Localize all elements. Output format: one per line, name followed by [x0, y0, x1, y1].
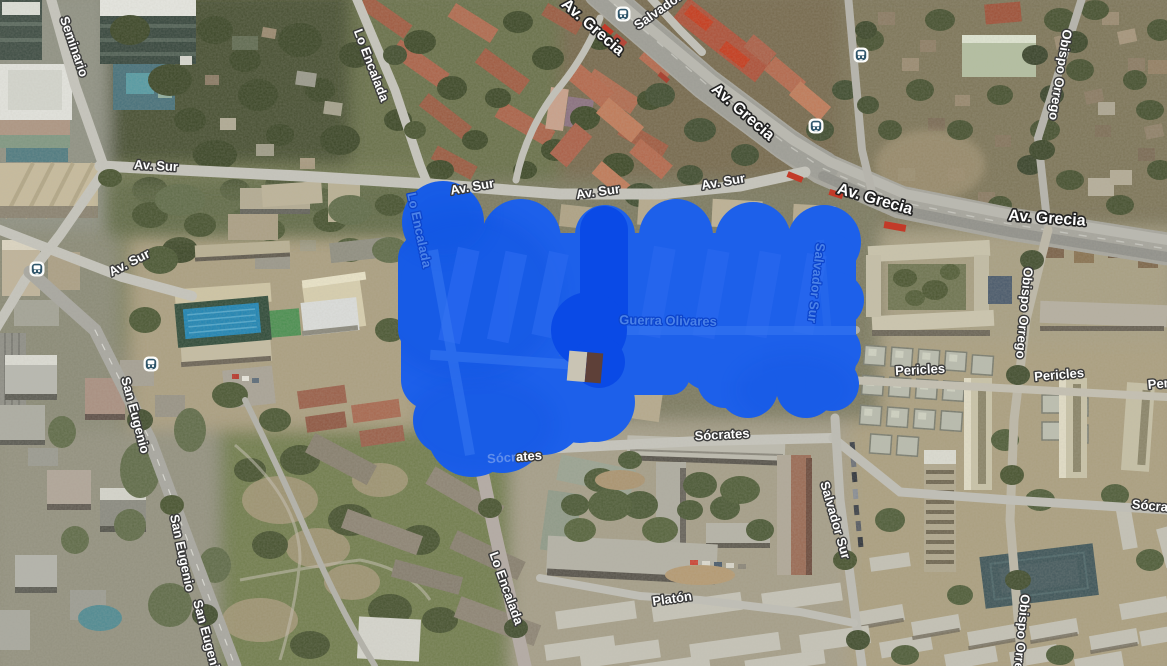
- svg-text:Guerra Olivares: Guerra Olivares: [619, 312, 717, 329]
- svg-text:Peri: Peri: [1147, 375, 1167, 392]
- svg-text:Sócrates: Sócrates: [694, 426, 750, 444]
- svg-text:Pericles: Pericles: [895, 361, 946, 379]
- svg-text:Av. Sur: Av. Sur: [134, 157, 179, 174]
